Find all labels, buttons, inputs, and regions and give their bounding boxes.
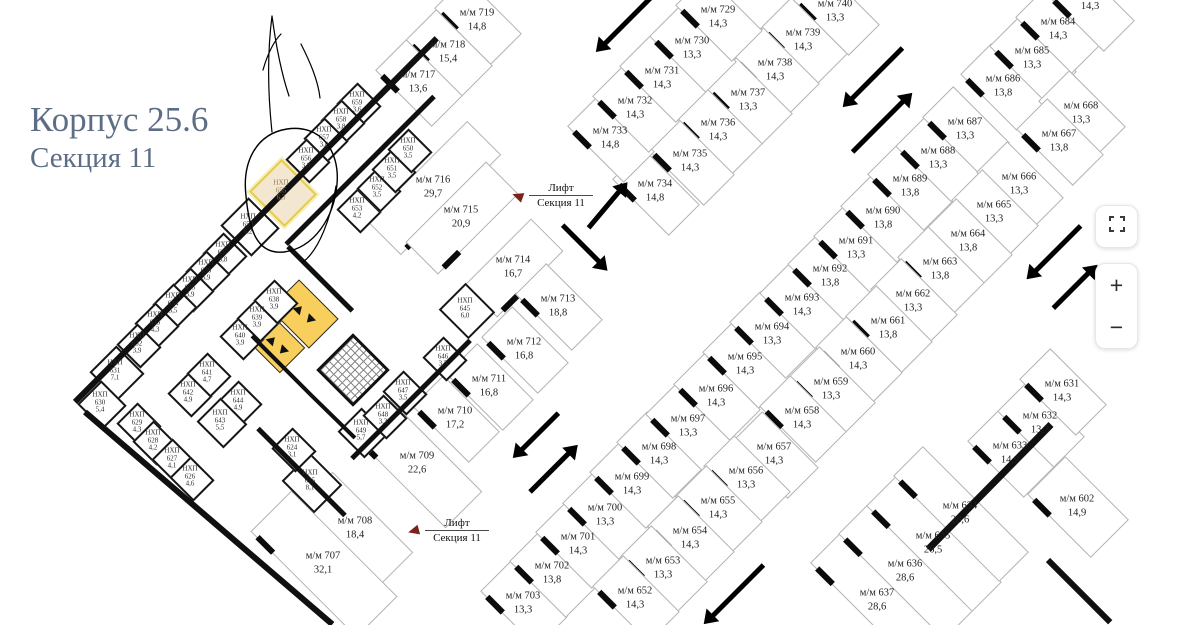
- parking-space-area: 14,3: [699, 396, 734, 410]
- storage-room-label: НХП6583,8: [333, 109, 348, 132]
- parking-space-area: 13,3: [1023, 423, 1058, 437]
- storage-area: 8,1: [302, 485, 317, 493]
- parking-space-area: 14,3: [673, 161, 708, 175]
- parking-space-area: 14,8: [638, 191, 673, 205]
- storage-room-label: НХП6456,0: [457, 298, 472, 321]
- storage-area: 3,9: [249, 322, 264, 330]
- storage-room-label: НХП6573,8: [316, 127, 331, 150]
- parking-space-label: м/м 70818,4: [338, 514, 373, 541]
- storage-room-label: НХП6513,5: [384, 158, 399, 181]
- elevator-down-icon: [303, 313, 316, 326]
- parking-space-area: 13,3: [977, 212, 1012, 226]
- storage-area: 3,9: [198, 275, 213, 283]
- parking-space-label: м/м 71017,2: [438, 404, 473, 431]
- storage-room-label: НХП6444,9: [230, 390, 245, 413]
- storage-area: 3,5: [395, 395, 410, 403]
- parking-space-area: 16,7: [496, 267, 531, 281]
- wall-segment: [1046, 558, 1112, 624]
- parking-space-area: 13,6: [401, 82, 436, 96]
- parking-space-number: м/м 716: [416, 173, 451, 187]
- parking-space-label: м/м 71216,8: [507, 335, 542, 362]
- parking-space-number: м/м 698: [642, 440, 677, 454]
- storage-room-label: НХП6495,7: [353, 420, 368, 443]
- zoom-out-button[interactable]: −: [1096, 306, 1137, 348]
- storage-room-label: НХП6556,3: [273, 180, 288, 203]
- parking-space-area: 13,3: [814, 389, 849, 403]
- storage-area: 3,8: [215, 257, 230, 265]
- storage-area: 3,5: [435, 361, 450, 369]
- parking-space-label: м/м 66413,8: [951, 227, 986, 254]
- parking-space-area: 14,3: [701, 130, 736, 144]
- storage-area: 5,5: [212, 425, 227, 433]
- parking-space-area: 14,8: [593, 138, 628, 152]
- parking-space-area: 17,2: [438, 418, 473, 432]
- parking-space-label: м/м 68913,8: [893, 172, 928, 199]
- parking-space-label: м/м 65514,3: [701, 494, 736, 521]
- parking-space-area: 28,6: [888, 571, 923, 585]
- parking-space-label: м/м 71520,9: [444, 203, 479, 230]
- parking-space-area: 16,8: [472, 386, 506, 400]
- parking-space-number: м/м 659: [814, 375, 849, 389]
- parking-space-area: 14,3: [758, 70, 793, 84]
- parking-space-area: 13,3: [671, 426, 706, 440]
- storage-room-label: НХП6546,2: [240, 214, 255, 237]
- parking-space-label: м/м 69213,8: [813, 262, 848, 289]
- parking-space-number: м/м 734: [638, 177, 673, 191]
- parking-space-number: м/м 667: [1042, 127, 1077, 141]
- parking-space-area: 26,5: [916, 543, 951, 557]
- storage-room-label: НХП6424,9: [180, 382, 195, 405]
- parking-space-number: м/м 662: [896, 287, 931, 301]
- storage-area: 4,6: [182, 481, 197, 489]
- parking-space-label: м/м 68414,3: [1041, 15, 1076, 42]
- parking-space-label: м/м 65814,3: [785, 404, 820, 431]
- storage-room-label: НХП6403,9: [232, 325, 247, 348]
- parking-space-label: м/м 71914,8: [460, 6, 495, 33]
- parking-space-label: м/м 63314,9: [993, 439, 1028, 466]
- parking-space-number: м/м 689: [893, 172, 928, 186]
- parking-space-area: 13,3: [948, 129, 983, 143]
- parking-space-area: 13,8: [923, 269, 958, 283]
- storage-area: 3,5: [165, 308, 180, 316]
- parking-space-label: м/м 66613,3: [1002, 170, 1037, 197]
- parking-space-number: м/м 740: [818, 0, 853, 11]
- parking-space-label: м/м 65913,3: [814, 375, 849, 402]
- traffic-direction-arrow: [528, 451, 570, 493]
- parking-space-label: м/м 69013,8: [866, 204, 901, 231]
- parking-space-label: м/м 73514,3: [673, 147, 708, 174]
- traffic-direction-arrow: [520, 411, 560, 451]
- storage-area: 4,9: [230, 405, 245, 413]
- storage-area: 6,3: [273, 195, 288, 203]
- storage-area: 3,5: [369, 192, 384, 200]
- parking-space-number: м/м 635: [916, 529, 951, 543]
- parking-space-area: 14,8: [460, 20, 495, 34]
- parking-space-label: м/м 63628,6: [888, 557, 923, 584]
- zoom-in-button[interactable]: +: [1096, 264, 1137, 306]
- lift-section-label: Секция 11: [425, 531, 489, 544]
- storage-room-label: НХП6353,9: [182, 277, 197, 300]
- parking-space-number: м/м 660: [841, 345, 876, 359]
- parking-space-number: м/м 695: [728, 350, 763, 364]
- parking-space-label: м/м 73713,3: [731, 86, 766, 113]
- parking-space-area: 14,9: [1060, 506, 1095, 520]
- parking-space-area: 28,6: [943, 513, 978, 527]
- parking-space-label: м/м 71116,8: [472, 372, 506, 399]
- parking-space-number: м/м 687: [948, 115, 983, 129]
- storage-area: 3,8: [298, 163, 313, 171]
- parking-space-number: м/м 685: [1015, 44, 1050, 58]
- storage-area: 6,0: [457, 313, 472, 321]
- storage-room-label: НХП6334,3: [147, 312, 162, 335]
- section-title: Секция 11: [30, 140, 208, 178]
- parking-space-number: м/м 708: [338, 514, 373, 528]
- parking-space-number: м/м 634: [943, 499, 978, 513]
- parking-space-label: м/м 70213,8: [535, 559, 570, 586]
- storage-area: 3,9: [266, 304, 281, 312]
- parking-space-area: 22,6: [400, 463, 435, 477]
- storage-room-label: НХП6393,9: [249, 307, 264, 330]
- parking-space-area: 13,3: [646, 568, 681, 582]
- parking-space-label: м/м 66713,8: [1042, 127, 1077, 154]
- parking-space-number: м/м 655: [701, 494, 736, 508]
- parking-space-number: м/м 739: [786, 26, 821, 40]
- parking-space-number: м/м 713: [541, 292, 576, 306]
- parking-space-label: м/м 63114,3: [1045, 377, 1080, 404]
- storage-room-label: НХП6284,2: [145, 430, 160, 453]
- parking-space-label: м/м 69113,3: [839, 234, 874, 261]
- lift-marker-text: ЛифтСекция 11: [529, 182, 593, 209]
- parking-space-area: 18,4: [338, 528, 373, 542]
- parking-space-area: 16,8: [507, 349, 542, 363]
- parking-space-area: 13,8: [535, 573, 570, 587]
- storage-area: 3,9: [232, 340, 247, 348]
- parking-space-number: м/м 686: [986, 72, 1021, 86]
- building-title: Корпус 25.6: [30, 100, 208, 140]
- parking-space-label: м/м 65214,3: [618, 584, 653, 611]
- traffic-direction-arrow: [711, 563, 765, 617]
- storage-room-label: НХП6305,4: [92, 392, 107, 415]
- parking-space-number: м/м 631: [1045, 377, 1080, 391]
- parking-space-number: м/м 715: [444, 203, 479, 217]
- parking-space-number: м/м 633: [993, 439, 1028, 453]
- parking-space-area: 13,3: [731, 100, 766, 114]
- parking-space-number: м/м 699: [615, 470, 650, 484]
- parking-space-area: 13,3: [755, 334, 790, 348]
- parking-space-label: м/м 65414,3: [673, 524, 708, 551]
- parking-space-area: 14,3: [1081, 0, 1099, 14]
- parking-space-number: м/м 738: [758, 56, 793, 70]
- parking-space-area: 13,3: [1002, 184, 1037, 198]
- storage-room-label: НХП6317,1: [107, 360, 122, 383]
- parking-space-number: м/м 703: [506, 589, 541, 603]
- parking-space-number: м/м 657: [757, 440, 792, 454]
- parking-space-area: 13,3: [729, 478, 764, 492]
- parking-space-number: м/м 688: [921, 144, 956, 158]
- parking-space-area: 14,3: [701, 508, 736, 522]
- storage-area: 3,1: [284, 452, 299, 460]
- storage-area: 4,2: [349, 213, 364, 221]
- storage-room-label: НХП6343,5: [165, 293, 180, 316]
- lift-label: Лифт: [529, 182, 593, 196]
- parking-space-number: м/м 702: [535, 559, 570, 573]
- parking-space-area: 13,3: [1064, 113, 1099, 127]
- lift-arrow-icon: [407, 524, 420, 537]
- parking-space-label: м/м 73914,3: [786, 26, 821, 53]
- parking-space-label: м/м 63728,6: [860, 586, 895, 613]
- parking-space-label: м/м 69413,3: [755, 320, 790, 347]
- parking-space-number: м/м 665: [977, 198, 1012, 212]
- lift-section-label: Секция 11: [529, 196, 593, 209]
- parking-space-number: м/м 729: [701, 3, 736, 17]
- lift-arrow-icon: [511, 189, 525, 202]
- storage-room-label: НХП6294,3: [129, 412, 144, 435]
- traffic-direction-arrow: [1034, 224, 1083, 273]
- parking-space-number: м/м 712: [507, 335, 542, 349]
- parking-space-label: м/м 74013,3: [818, 0, 853, 25]
- storage-area: 3,5: [384, 173, 399, 181]
- storage-area: 4,7: [199, 377, 214, 385]
- parking-space-label: м/м 73414,8: [638, 177, 673, 204]
- parking-space-label: м/м 66813,3: [1064, 99, 1099, 126]
- zoom-controls: + −: [1095, 263, 1138, 349]
- parking-space-number: м/м 710: [438, 404, 473, 418]
- parking-space-number: м/м 690: [866, 204, 901, 218]
- parking-space-label: м/м 63213,3: [1023, 409, 1058, 436]
- parking-space-area: 14,3: [786, 40, 821, 54]
- parking-space-label: м/м 68813,3: [921, 144, 956, 171]
- storage-area: 3,3: [375, 419, 390, 427]
- parking-space-number: м/м 694: [755, 320, 790, 334]
- parking-space-label: м/м 63526,5: [916, 529, 951, 556]
- parking-space-area: 14,3: [1045, 391, 1080, 405]
- parking-space-number: м/м 664: [951, 227, 986, 241]
- storage-room-label: НХП6473,5: [395, 380, 410, 403]
- storage-area: 4,9: [180, 397, 195, 405]
- parking-space-area: 14,3: [618, 108, 653, 122]
- storage-area: 3,9: [129, 348, 144, 356]
- storage-area: 4,1: [164, 463, 179, 471]
- parking-space-area: 14,3: [645, 78, 680, 92]
- storage-room-label: НХП6383,9: [266, 289, 281, 312]
- parking-space-number: м/м 719: [460, 6, 495, 20]
- parking-space-label: 14,3: [1081, 0, 1099, 14]
- parking-space-number: м/м 653: [646, 554, 681, 568]
- parking-space-area: 13,3: [675, 48, 710, 62]
- parking-space-label: м/м 70313,3: [506, 589, 541, 616]
- floor-plan[interactable]: Корпус 25.6 Секция 11 + − м/м 71914,8м/м…: [0, 0, 1187, 625]
- parking-space-label: м/м 73214,3: [618, 94, 653, 121]
- parking-space-label: м/м 65613,3: [729, 464, 764, 491]
- parking-space-area: 14,3: [673, 538, 708, 552]
- parking-space-area: 14,3: [561, 544, 596, 558]
- parking-space-area: 14,3: [615, 484, 650, 498]
- parking-space-label: м/м 65313,3: [646, 554, 681, 581]
- storage-room-label: НХП6274,1: [164, 448, 179, 471]
- parking-space-label: м/м 71629,7: [416, 173, 451, 200]
- parking-space-number: м/м 696: [699, 382, 734, 396]
- traffic-direction-arrow: [850, 46, 904, 100]
- parking-space-number: м/м 652: [618, 584, 653, 598]
- fullscreen-button[interactable]: [1095, 205, 1138, 248]
- parking-space-area: 14,3: [785, 418, 820, 432]
- stairs: [316, 333, 390, 407]
- parking-space-number: м/м 636: [888, 557, 923, 571]
- storage-room-label: НХП6463,5: [435, 346, 450, 369]
- parking-space-label: м/м 71713,6: [401, 68, 436, 95]
- storage-room-label: НХП6373,8: [215, 242, 230, 265]
- parking-space-number: м/м 701: [561, 530, 596, 544]
- parking-space-label: м/м 70922,6: [400, 449, 435, 476]
- storage-room-label: НХП6593,6: [349, 92, 364, 115]
- parking-space-number: м/м 632: [1023, 409, 1058, 423]
- storage-room-label: НХП6534,2: [349, 198, 364, 221]
- storage-room-label: НХП6435,5: [212, 410, 227, 433]
- parking-space-area: 15,4: [431, 52, 466, 66]
- fullscreen-icon: [1109, 216, 1125, 237]
- plan-title: Корпус 25.6 Секция 11: [30, 100, 208, 178]
- parking-space-label: м/м 66513,3: [977, 198, 1012, 225]
- parking-space-area: 13,8: [951, 241, 986, 255]
- storage-room-label: НХП6264,6: [182, 466, 197, 489]
- parking-space-label: м/м 73314,8: [593, 124, 628, 151]
- parking-space-area: 20,9: [444, 217, 479, 231]
- parking-space-number: м/м 709: [400, 449, 435, 463]
- parking-space-number: м/м 666: [1002, 170, 1037, 184]
- parking-space-area: 13,3: [921, 158, 956, 172]
- parking-space-label: м/м 66313,8: [923, 255, 958, 282]
- parking-space-label: м/м 69614,3: [699, 382, 734, 409]
- parking-space-number: м/м 711: [472, 372, 506, 386]
- storage-room-label: НХП6483,3: [375, 404, 390, 427]
- storage-room-label: НХП6503,5: [400, 138, 415, 161]
- parking-space-number: м/м 735: [673, 147, 708, 161]
- storage-room-label: НХП6563,8: [298, 148, 313, 171]
- parking-space-area: 14,9: [993, 453, 1028, 467]
- storage-area: 3,9: [182, 292, 197, 300]
- traffic-direction-arrow: [1052, 271, 1091, 310]
- parking-space-number: м/м 693: [785, 291, 820, 305]
- parking-space-label: м/м 68613,8: [986, 72, 1021, 99]
- parking-space-area: 13,8: [1042, 141, 1077, 155]
- parking-space-label: м/м 69314,3: [785, 291, 820, 318]
- parking-space-number: м/м 602: [1060, 492, 1095, 506]
- parking-space-area: 13,8: [813, 276, 848, 290]
- parking-space-number: м/м 717: [401, 68, 436, 82]
- parking-space-label: м/м 73814,3: [758, 56, 793, 83]
- storage-area: 6,2: [240, 229, 255, 237]
- parking-space-number: м/м 714: [496, 253, 531, 267]
- parking-space-area: 28,6: [860, 600, 895, 614]
- parking-space-number: м/м 731: [645, 64, 680, 78]
- parking-space-number: м/м 661: [871, 314, 906, 328]
- parking-space-label: м/м 70114,3: [561, 530, 596, 557]
- parking-space-label: м/м 73114,3: [645, 64, 680, 91]
- parking-space-area: 18,8: [541, 306, 576, 320]
- parking-space-area: 13,8: [986, 86, 1021, 100]
- lift-marker: ЛифтСекция 11: [512, 182, 593, 209]
- parking-space-area: 13,8: [871, 328, 906, 342]
- parking-space-label: м/м 69514,3: [728, 350, 763, 377]
- parking-space-area: 14,3: [841, 359, 876, 373]
- parking-space-number: м/м 730: [675, 34, 710, 48]
- parking-space-area: 29,7: [416, 187, 451, 201]
- parking-space-number: м/м 700: [588, 501, 623, 515]
- storage-area: 4,3: [147, 327, 162, 335]
- parking-space-number: м/м 663: [923, 255, 958, 269]
- parking-space-area: 14,3: [642, 454, 677, 468]
- parking-space-label: м/м 70013,3: [588, 501, 623, 528]
- parking-space-number: м/м 707: [306, 549, 341, 563]
- storage-room-label: НХП6414,7: [199, 362, 214, 385]
- parking-space-area: 32,1: [306, 563, 341, 577]
- storage-room-label: НХП6523,5: [369, 177, 384, 200]
- parking-space-number: м/м 718: [431, 38, 466, 52]
- parking-space-area: 13,3: [1015, 58, 1050, 72]
- storage-area: 4,2: [145, 445, 160, 453]
- storage-area: 7,1: [107, 375, 122, 383]
- storage-area: 4,3: [129, 427, 144, 435]
- parking-space-area: 13,3: [506, 603, 541, 617]
- parking-space-label: м/м 69914,3: [615, 470, 650, 497]
- parking-space-area: 14,3: [618, 598, 653, 612]
- parking-space-number: м/м 654: [673, 524, 708, 538]
- parking-space-label: м/м 69713,3: [671, 412, 706, 439]
- parking-space-number: м/м 736: [701, 116, 736, 130]
- storage-room-label: НХП6323,9: [129, 333, 144, 356]
- parking-space-number: м/м 733: [593, 124, 628, 138]
- parking-space-number: м/м 637: [860, 586, 895, 600]
- parking-space-number: м/м 684: [1041, 15, 1076, 29]
- elevator-down-icon: [276, 344, 289, 357]
- storage-area: 3,6: [349, 107, 364, 115]
- storage-area: 3,8: [316, 142, 331, 150]
- storage-area: 5,7: [353, 435, 368, 443]
- parking-space-label: м/м 68513,3: [1015, 44, 1050, 71]
- parking-space-area: 13,3: [818, 11, 853, 25]
- parking-space-area: 14,3: [701, 17, 736, 31]
- parking-space-number: м/м 697: [671, 412, 706, 426]
- storage-area: 3,8: [333, 124, 348, 132]
- parking-space-label: м/м 70732,1: [306, 549, 341, 576]
- parking-space-label: м/м 66113,8: [871, 314, 906, 341]
- lift-label: Лифт: [425, 517, 489, 531]
- parking-space-label: м/м 60214,9: [1060, 492, 1095, 519]
- storage-area: 3,5: [400, 153, 415, 161]
- parking-space-label: м/м 66213,3: [896, 287, 931, 314]
- lift-marker: ЛифтСекция 11: [408, 517, 489, 544]
- storage-room-label: НХП6363,9: [198, 260, 213, 283]
- parking-space-label: м/м 71815,4: [431, 38, 466, 65]
- parking-space-number: м/м 656: [729, 464, 764, 478]
- parking-space-area: 13,3: [896, 301, 931, 315]
- parking-space-area: 13,8: [893, 186, 928, 200]
- parking-space-area: 14,3: [785, 305, 820, 319]
- lift-marker-text: ЛифтСекция 11: [425, 517, 489, 544]
- parking-space-number: м/м 732: [618, 94, 653, 108]
- parking-space-area: 13,3: [588, 515, 623, 529]
- parking-space-label: м/м 73614,3: [701, 116, 736, 143]
- storage-room-label: НХП6258,1: [302, 470, 317, 493]
- parking-space-label: м/м 66014,3: [841, 345, 876, 372]
- storage-area: 5,4: [92, 407, 107, 415]
- traffic-direction-arrow: [561, 223, 601, 263]
- parking-space-label: м/м 71318,8: [541, 292, 576, 319]
- parking-space-number: м/м 737: [731, 86, 766, 100]
- parking-space-label: м/м 71416,7: [496, 253, 531, 280]
- parking-space-number: м/м 692: [813, 262, 848, 276]
- storage-room-label: НХП6243,1: [284, 437, 299, 460]
